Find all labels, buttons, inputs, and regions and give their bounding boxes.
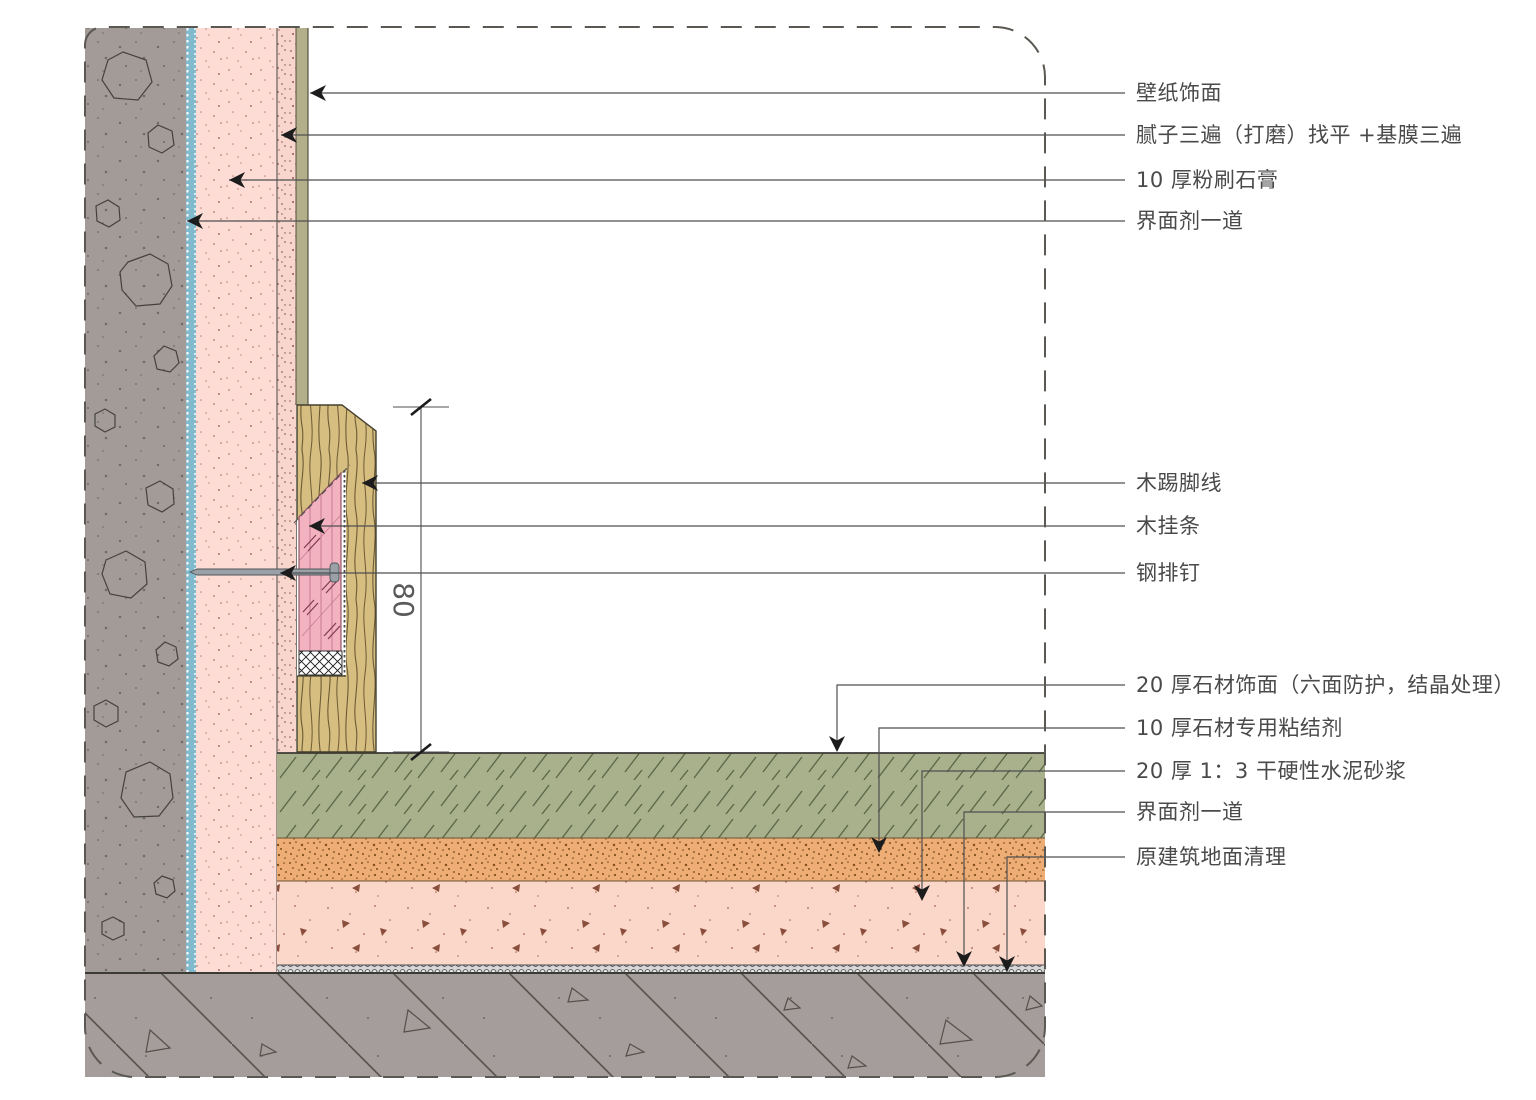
label-interface-agent-wall: 界面剂一道 xyxy=(1136,206,1244,236)
cement-mortar-layer xyxy=(277,881,1045,965)
label-steel-nail: 钢排钉 xyxy=(1136,558,1201,588)
concrete-wall xyxy=(85,28,186,973)
label-wood-batten: 木挂条 xyxy=(1136,511,1201,541)
dimension-80-text: 80 xyxy=(387,582,420,618)
packing-crosshatch xyxy=(299,651,342,675)
floor-interface-strip xyxy=(277,965,1045,973)
label-putty-leveling: 腻子三遍（打磨）找平 +基膜三遍 xyxy=(1136,120,1462,150)
label-interface-agent-floor: 界面剂一道 xyxy=(1136,797,1244,827)
construction-detail-page: 80 壁纸饰面 腻子三遍（打磨）找平 +基膜三遍 10 厚粉刷石膏 界面剂一道 … xyxy=(0,0,1536,1100)
detail-drawing: 80 xyxy=(0,0,1536,1100)
label-cement-mortar-20: 20 厚 1：3 干硬性水泥砂浆 xyxy=(1136,756,1406,786)
stone-adhesive-layer xyxy=(277,838,1045,881)
label-wallpaper-finish: 壁纸饰面 xyxy=(1136,78,1222,108)
interface-agent-layer xyxy=(186,28,196,973)
label-plaster-10: 10 厚粉刷石膏 xyxy=(1136,165,1278,195)
plaster-layer xyxy=(196,28,277,973)
label-stone-adhesive-10: 10 厚石材专用粘结剂 xyxy=(1136,713,1343,743)
label-floor-cleaning: 原建筑地面清理 xyxy=(1136,842,1287,872)
original-floor-slab xyxy=(85,973,1045,1077)
stone-finish-layer xyxy=(277,753,1045,838)
wallpaper-layer xyxy=(296,28,308,405)
label-wood-skirting: 木踢脚线 xyxy=(1136,468,1222,498)
dimension-80: 80 xyxy=(387,399,449,760)
label-stone-finish-20: 20 厚石材饰面（六面防护，结晶处理） xyxy=(1136,670,1515,700)
